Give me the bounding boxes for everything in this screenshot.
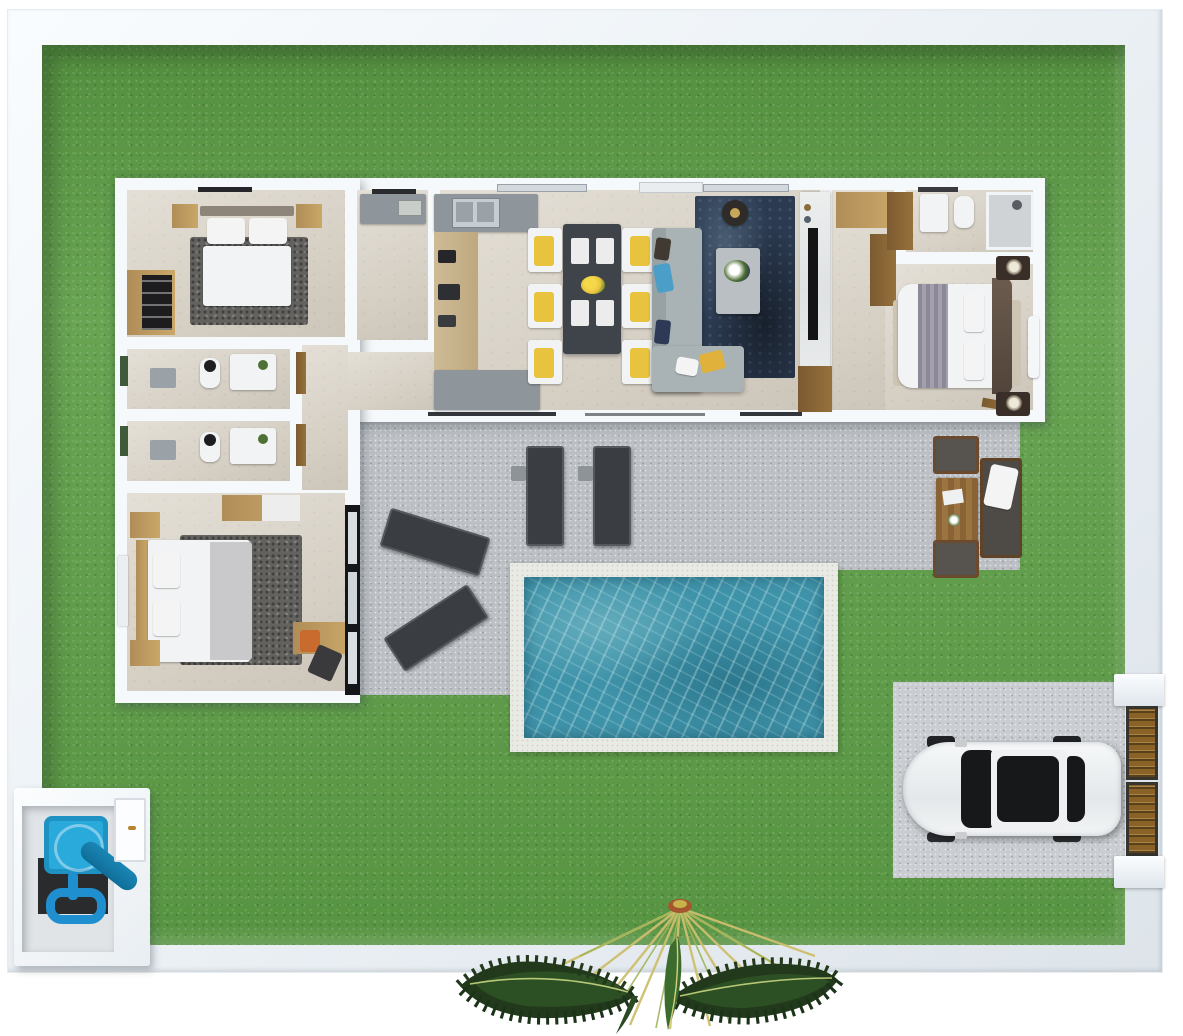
car-mirror — [955, 740, 967, 747]
table-flowers — [724, 260, 750, 282]
magazine — [942, 489, 964, 506]
lamp-top — [730, 208, 740, 218]
swimming-pool — [524, 577, 824, 738]
pillow — [249, 218, 287, 244]
plant — [258, 434, 268, 444]
sink-basin — [456, 202, 473, 222]
bath-mat — [150, 368, 176, 388]
countertop-appliance — [438, 284, 460, 300]
car — [903, 736, 1121, 844]
bedroom-1-window — [198, 187, 252, 192]
bedroom-1-headboard — [200, 206, 294, 216]
car-rear-window — [1067, 756, 1085, 822]
pillow — [964, 292, 984, 332]
bathroom-door — [296, 352, 306, 394]
table-lamp — [1006, 259, 1022, 275]
lounger-side-table — [578, 466, 593, 481]
place-setting — [596, 238, 614, 264]
toilet-lid — [204, 360, 216, 372]
bathroom-2-window — [120, 426, 128, 456]
tv-cabinet — [798, 366, 832, 412]
wardrobe-shelves — [142, 275, 172, 330]
flower-centerpiece — [581, 276, 605, 294]
nightstand — [296, 204, 322, 228]
outdoor-armchair — [933, 540, 979, 578]
table-lamp — [1006, 395, 1022, 411]
shower — [986, 192, 1034, 250]
ensuite-closet — [887, 192, 913, 250]
chair-cushion — [534, 348, 554, 378]
bathroom-window — [918, 187, 958, 192]
place-setting — [596, 300, 614, 326]
palm-tree — [430, 878, 860, 1036]
bathroom-1-window — [120, 356, 128, 386]
floor-plan-render — [0, 0, 1183, 1036]
bath-mat — [150, 440, 176, 460]
kitchen-passage-floor — [348, 352, 440, 410]
shelf-decor — [804, 216, 811, 223]
chair-cushion — [630, 292, 650, 322]
glass-pane — [348, 572, 357, 624]
chair-cushion — [534, 236, 554, 266]
pillow — [207, 218, 245, 244]
nightstand — [130, 640, 160, 666]
glass-pane — [348, 632, 357, 684]
chair-cushion — [630, 348, 650, 378]
laundry-sink — [398, 200, 422, 216]
sliding-door-track — [428, 412, 556, 416]
glass-pane — [348, 512, 357, 564]
pillow — [153, 600, 180, 636]
table-flowers — [948, 514, 960, 526]
tv-screen — [808, 228, 818, 340]
wing-hallway-floor — [302, 345, 348, 490]
countertop-appliance — [438, 315, 456, 327]
door-latch — [128, 826, 136, 830]
sun-lounger — [593, 446, 631, 546]
chair-cushion — [630, 236, 650, 266]
ensuite-vanity — [920, 194, 948, 232]
living-window — [704, 185, 788, 191]
car-windshield — [961, 750, 993, 828]
kitchen-window — [498, 185, 586, 191]
gate-pillar — [1114, 674, 1164, 706]
folded-blanket — [210, 542, 252, 660]
car-sunroof — [997, 756, 1059, 822]
plant — [258, 360, 268, 370]
entrance-gate-panel — [1126, 706, 1158, 780]
water-pipe-loop — [46, 888, 106, 924]
chair-cushion — [534, 292, 554, 322]
wall-art — [118, 556, 128, 626]
sliding-door-track — [585, 413, 705, 416]
entrance-gate-panel — [1126, 782, 1158, 856]
sink-basin — [477, 202, 494, 222]
toilet — [954, 196, 974, 228]
sun-lounger — [526, 446, 564, 546]
shelf-decor — [804, 204, 811, 211]
hallway-console — [836, 192, 894, 228]
place-setting — [571, 238, 589, 264]
pillow — [153, 552, 180, 588]
gate-pillar — [1114, 856, 1164, 888]
kitchen-island — [434, 370, 540, 410]
pillow — [964, 340, 984, 380]
bathroom-door — [296, 424, 306, 466]
throw-pillow-navy — [654, 319, 671, 344]
window-sill — [640, 183, 702, 192]
wall-panel — [1028, 316, 1039, 378]
sliding-door-track — [740, 412, 802, 416]
place-setting — [571, 300, 589, 326]
throw-pillow-white — [675, 356, 700, 377]
lounger-side-table — [511, 466, 526, 481]
closet-white-section — [262, 495, 300, 521]
bed-runner — [918, 284, 948, 388]
coffee-machine — [438, 250, 456, 263]
nightstand — [130, 512, 160, 538]
toilet-lid — [204, 434, 216, 446]
bedroom-1-bed — [203, 246, 291, 306]
nightstand — [172, 204, 198, 228]
master-headboard — [992, 278, 1012, 394]
throw-pillow-dark — [654, 237, 672, 261]
vanity-counter — [230, 428, 276, 464]
sofa-chaise — [652, 346, 744, 392]
outdoor-armchair — [933, 436, 979, 474]
shower-head — [1012, 200, 1022, 210]
outdoor-coffee-table — [936, 478, 978, 542]
car-mirror — [955, 832, 967, 839]
utility-door — [114, 798, 146, 862]
vanity-counter — [230, 354, 276, 390]
